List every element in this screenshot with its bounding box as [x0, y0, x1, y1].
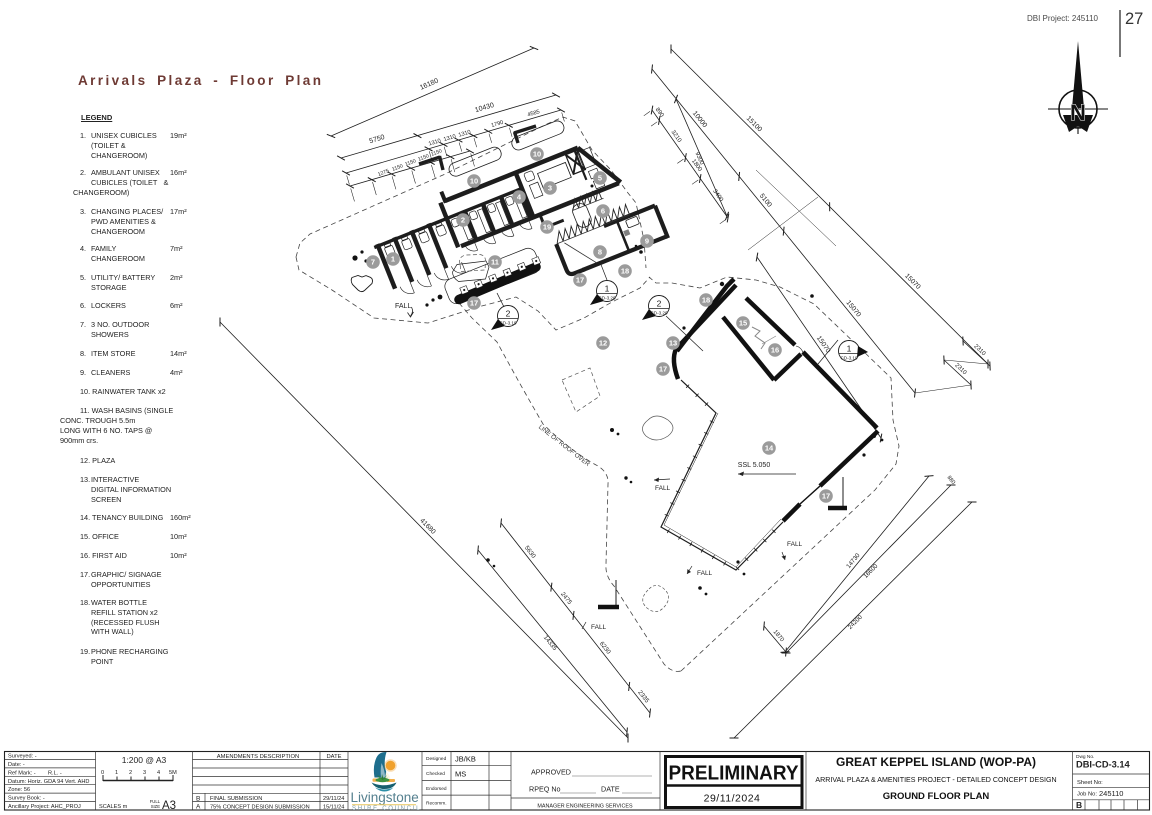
svg-text:4: 4 [157, 770, 160, 776]
svg-text:Recomm.: Recomm. [426, 801, 447, 807]
svg-text:Endorsed: Endorsed [426, 786, 447, 792]
svg-text:MS: MS [455, 770, 466, 779]
svg-text:Zone: 56: Zone: 56 [8, 787, 30, 793]
svg-text:2: 2 [129, 770, 132, 776]
svg-text:Ancillary Project: AHC_PROJ: Ancillary Project: AHC_PROJ [8, 804, 81, 810]
svg-text:1: 1 [115, 770, 118, 776]
svg-text:29/11/2024: 29/11/2024 [704, 793, 761, 805]
svg-text:B: B [196, 796, 200, 803]
svg-text:15/11/24: 15/11/24 [323, 804, 344, 810]
svg-text:RPEQ No: RPEQ No [529, 785, 561, 794]
svg-text:Surveyed: -: Surveyed: - [8, 754, 37, 760]
svg-text:ARRIVAL PLAZA & AMENITIES PROJ: ARRIVAL PLAZA & AMENITIES PROJECT - DETA… [815, 776, 1056, 784]
svg-text:245110: 245110 [1099, 789, 1123, 798]
svg-text:FINAL SUBMISSION: FINAL SUBMISSION [210, 796, 262, 802]
svg-text:29/11/24: 29/11/24 [323, 796, 344, 802]
svg-text:JB/KB: JB/KB [455, 755, 476, 764]
svg-text:DBI-CD-3.14: DBI-CD-3.14 [1076, 760, 1131, 770]
svg-text:DATE: DATE [601, 785, 620, 794]
svg-text:GREAT KEPPEL ISLAND (WOP-PA): GREAT KEPPEL ISLAND (WOP-PA) [836, 755, 1036, 769]
svg-text:Livingstone: Livingstone [351, 790, 419, 805]
svg-text:75% CONCEPT DESIGN SUBMISSION: 75% CONCEPT DESIGN SUBMISSION [210, 804, 310, 810]
svg-text:GROUND FLOOR PLAN: GROUND FLOOR PLAN [883, 791, 990, 802]
svg-text:A3: A3 [162, 800, 176, 812]
svg-text:Designed: Designed [426, 756, 447, 762]
svg-text:3: 3 [143, 770, 146, 776]
svg-text:AMENDMENTS DESCRIPTION: AMENDMENTS DESCRIPTION [217, 754, 299, 760]
svg-text:B: B [1076, 800, 1082, 810]
svg-text:Datum: Horiz. GDA 94 Vert. A: Datum: Horiz. GDA 94 Vert. AHD [8, 779, 89, 785]
svg-text:Job No:: Job No: [1077, 792, 1097, 798]
svg-text:Date: -: Date: - [8, 762, 25, 768]
svg-text:1:200 @ A3: 1:200 @ A3 [122, 755, 167, 765]
svg-text:Ref Mark: -: Ref Mark: - [8, 770, 36, 776]
svg-text:Checked: Checked [426, 771, 445, 777]
svg-text:APPROVED: APPROVED [531, 768, 571, 777]
svg-text:SIZE: SIZE [151, 804, 161, 809]
svg-text:A: A [196, 804, 201, 811]
svg-text:Sheet No:: Sheet No: [1077, 780, 1103, 786]
svg-text:MANAGER ENGINEERING SERVICES: MANAGER ENGINEERING SERVICES [537, 804, 633, 810]
svg-text:SHIRE COUNCIL: SHIRE COUNCIL [352, 806, 421, 812]
svg-text:Survey Book: -: Survey Book: - [8, 796, 45, 802]
svg-text:PRELIMINARY: PRELIMINARY [669, 762, 799, 785]
svg-text:DATE: DATE [326, 754, 341, 760]
svg-text:SCALES m: SCALES m [99, 804, 128, 810]
svg-text:R.L. -: R.L. - [48, 770, 62, 776]
